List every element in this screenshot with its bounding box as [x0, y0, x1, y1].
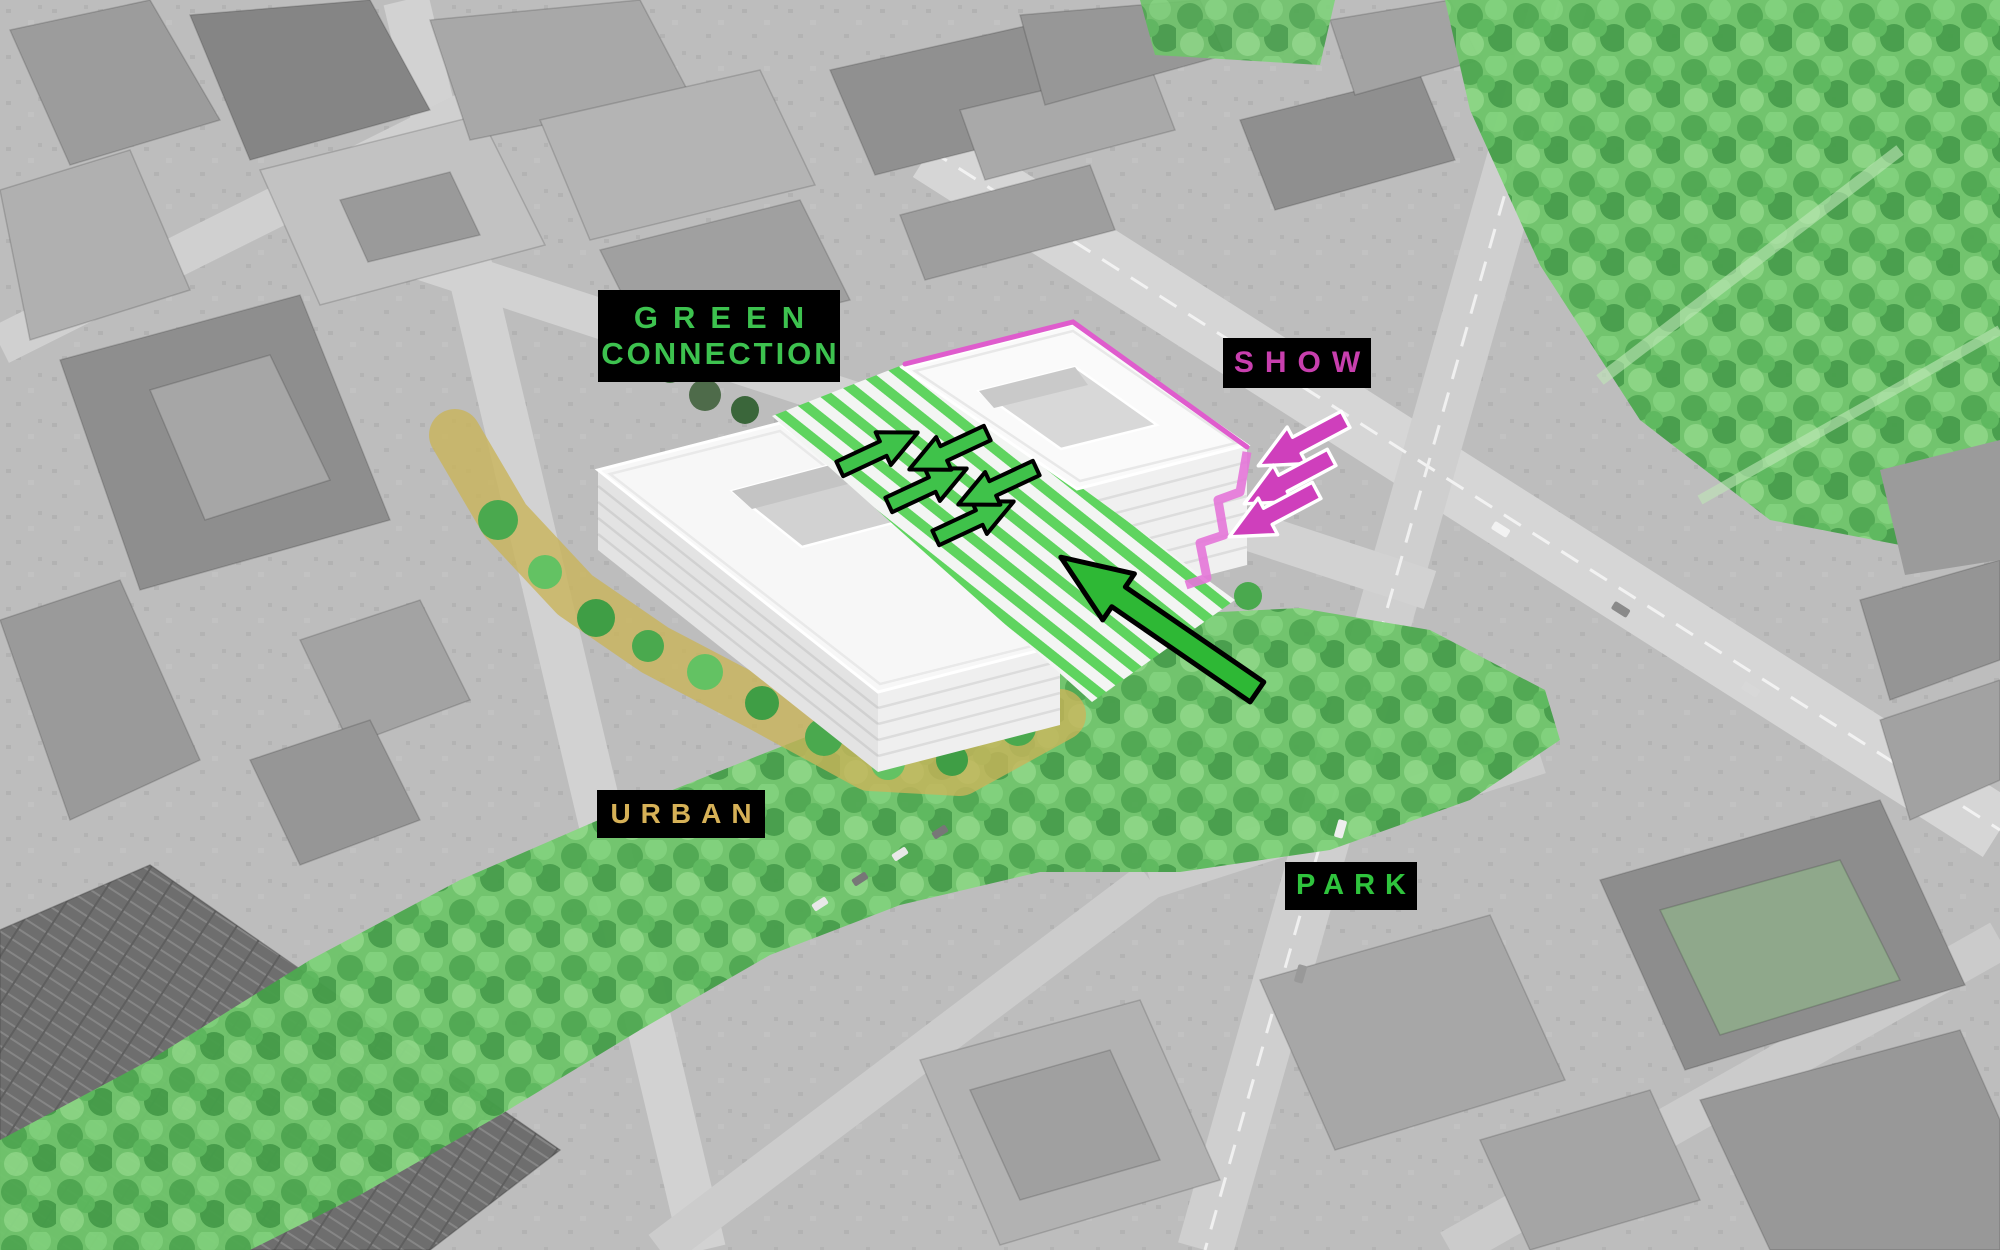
tree	[731, 396, 759, 424]
green-connection-label-line1: GREEN	[619, 300, 819, 336]
tree	[478, 500, 518, 540]
green-connection-label: GREEN CONNECTION	[598, 290, 840, 382]
tree	[687, 654, 723, 690]
green-connection-label-line2: CONNECTION	[598, 336, 839, 372]
show-label-text: SHOW	[1223, 346, 1371, 381]
tree	[577, 599, 615, 637]
aerial-photo	[0, 0, 2000, 1250]
aerial-concept-diagram: GREEN CONNECTION SHOW URBAN PARK	[0, 0, 2000, 1250]
park-label-text: PARK	[1286, 869, 1416, 902]
show-label: SHOW	[1223, 338, 1371, 388]
tree	[689, 379, 721, 411]
tree	[1234, 582, 1262, 610]
park-strip-top	[1140, 0, 1335, 65]
tree	[528, 555, 562, 589]
tree	[632, 630, 664, 662]
urban-label-text: URBAN	[600, 798, 761, 830]
park-label: PARK	[1285, 862, 1417, 910]
urban-label: URBAN	[597, 790, 765, 838]
tree	[745, 686, 779, 720]
